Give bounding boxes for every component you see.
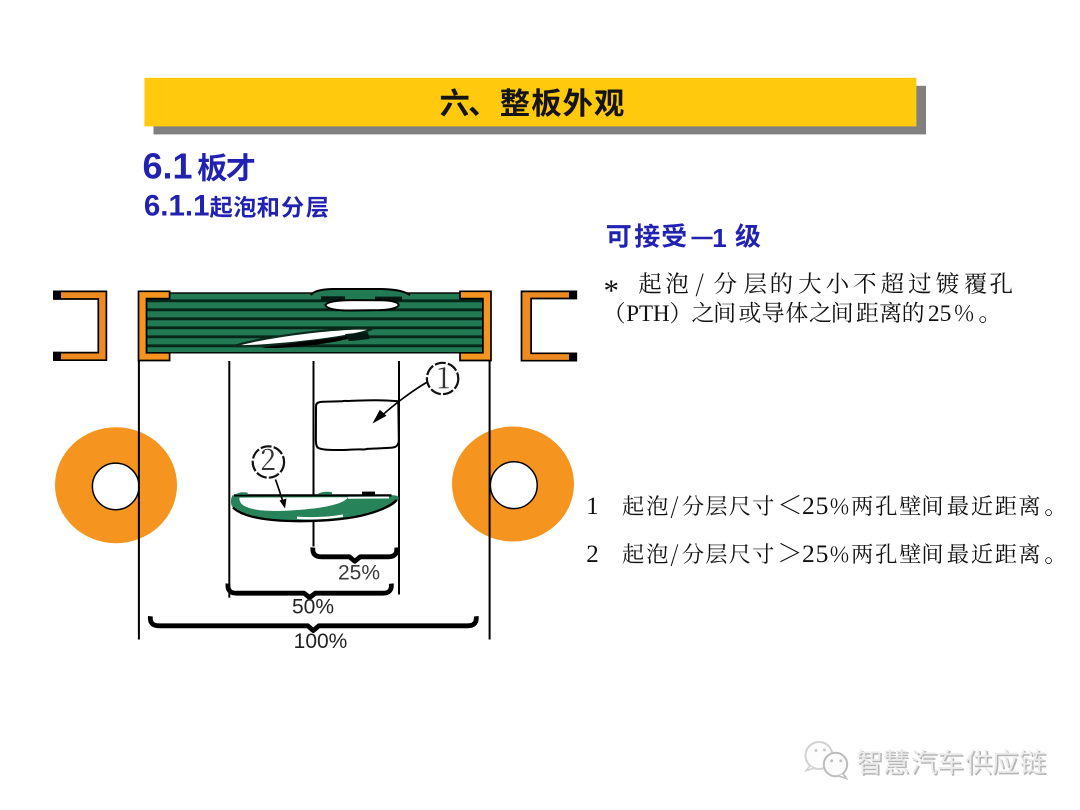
- svg-text:PTH: PTH: [626, 301, 669, 326]
- svg-text:2: 2: [586, 541, 599, 568]
- svg-text:25: 25: [928, 301, 952, 327]
- svg-text:1: 1: [712, 223, 726, 253]
- svg-text:25: 25: [802, 539, 829, 568]
- svg-text:1: 1: [586, 493, 599, 520]
- svg-text:50%: 50%: [292, 596, 334, 619]
- svg-text:25%: 25%: [338, 562, 380, 585]
- svg-text:*: *: [604, 273, 620, 308]
- svg-text:6.1: 6.1: [143, 146, 193, 187]
- svg-text:100%: 100%: [294, 630, 348, 653]
- svg-text:6.1.1: 6.1.1: [144, 190, 210, 223]
- svg-text:25: 25: [802, 491, 829, 520]
